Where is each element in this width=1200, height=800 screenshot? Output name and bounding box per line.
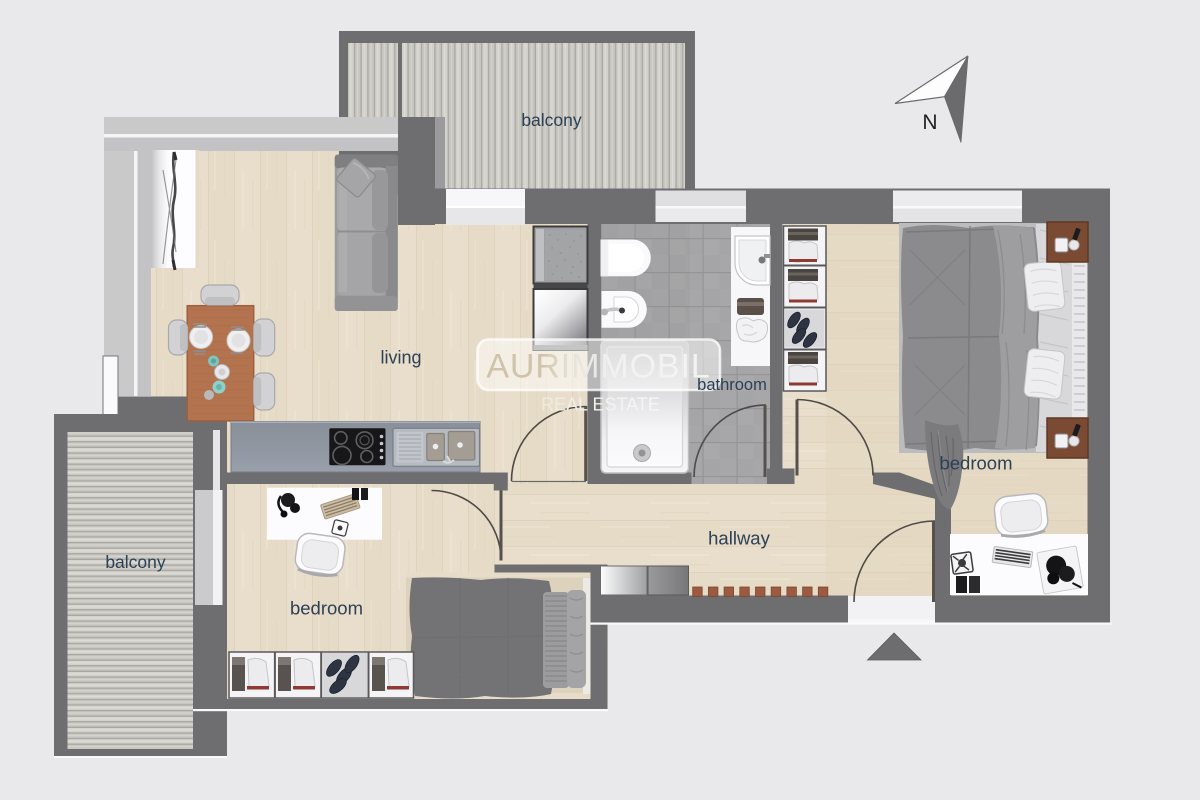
svg-text:living: living	[380, 348, 421, 368]
svg-text:REAL ESTATE: REAL ESTATE	[541, 395, 660, 415]
svg-text:bedroom: bedroom	[939, 453, 1012, 474]
svg-text:AURIMMOBIL: AURIMMOBIL	[486, 348, 710, 386]
svg-text:balcony: balcony	[521, 110, 582, 130]
svg-text:hallway: hallway	[708, 528, 770, 549]
svg-text:bedroom: bedroom	[290, 598, 363, 619]
svg-text:N: N	[922, 111, 937, 134]
svg-text:balcony: balcony	[105, 552, 166, 572]
svg-text:bathroom: bathroom	[697, 376, 767, 394]
